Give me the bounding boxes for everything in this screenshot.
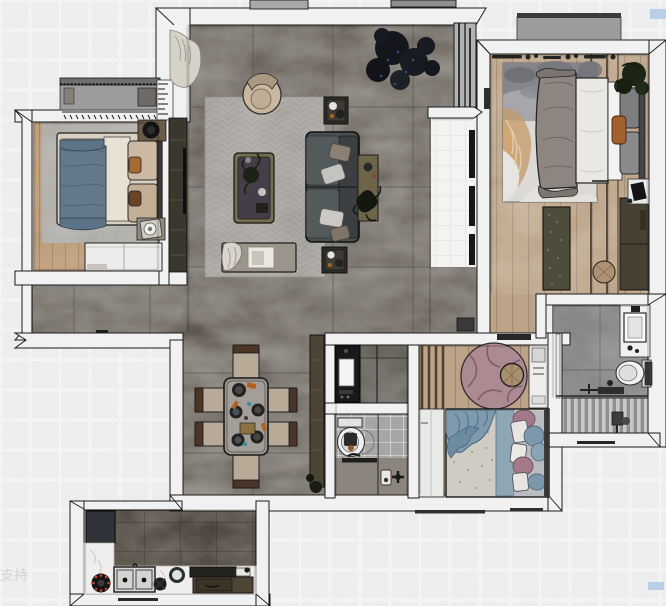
svg-text:支持: 支持 xyxy=(0,567,28,583)
